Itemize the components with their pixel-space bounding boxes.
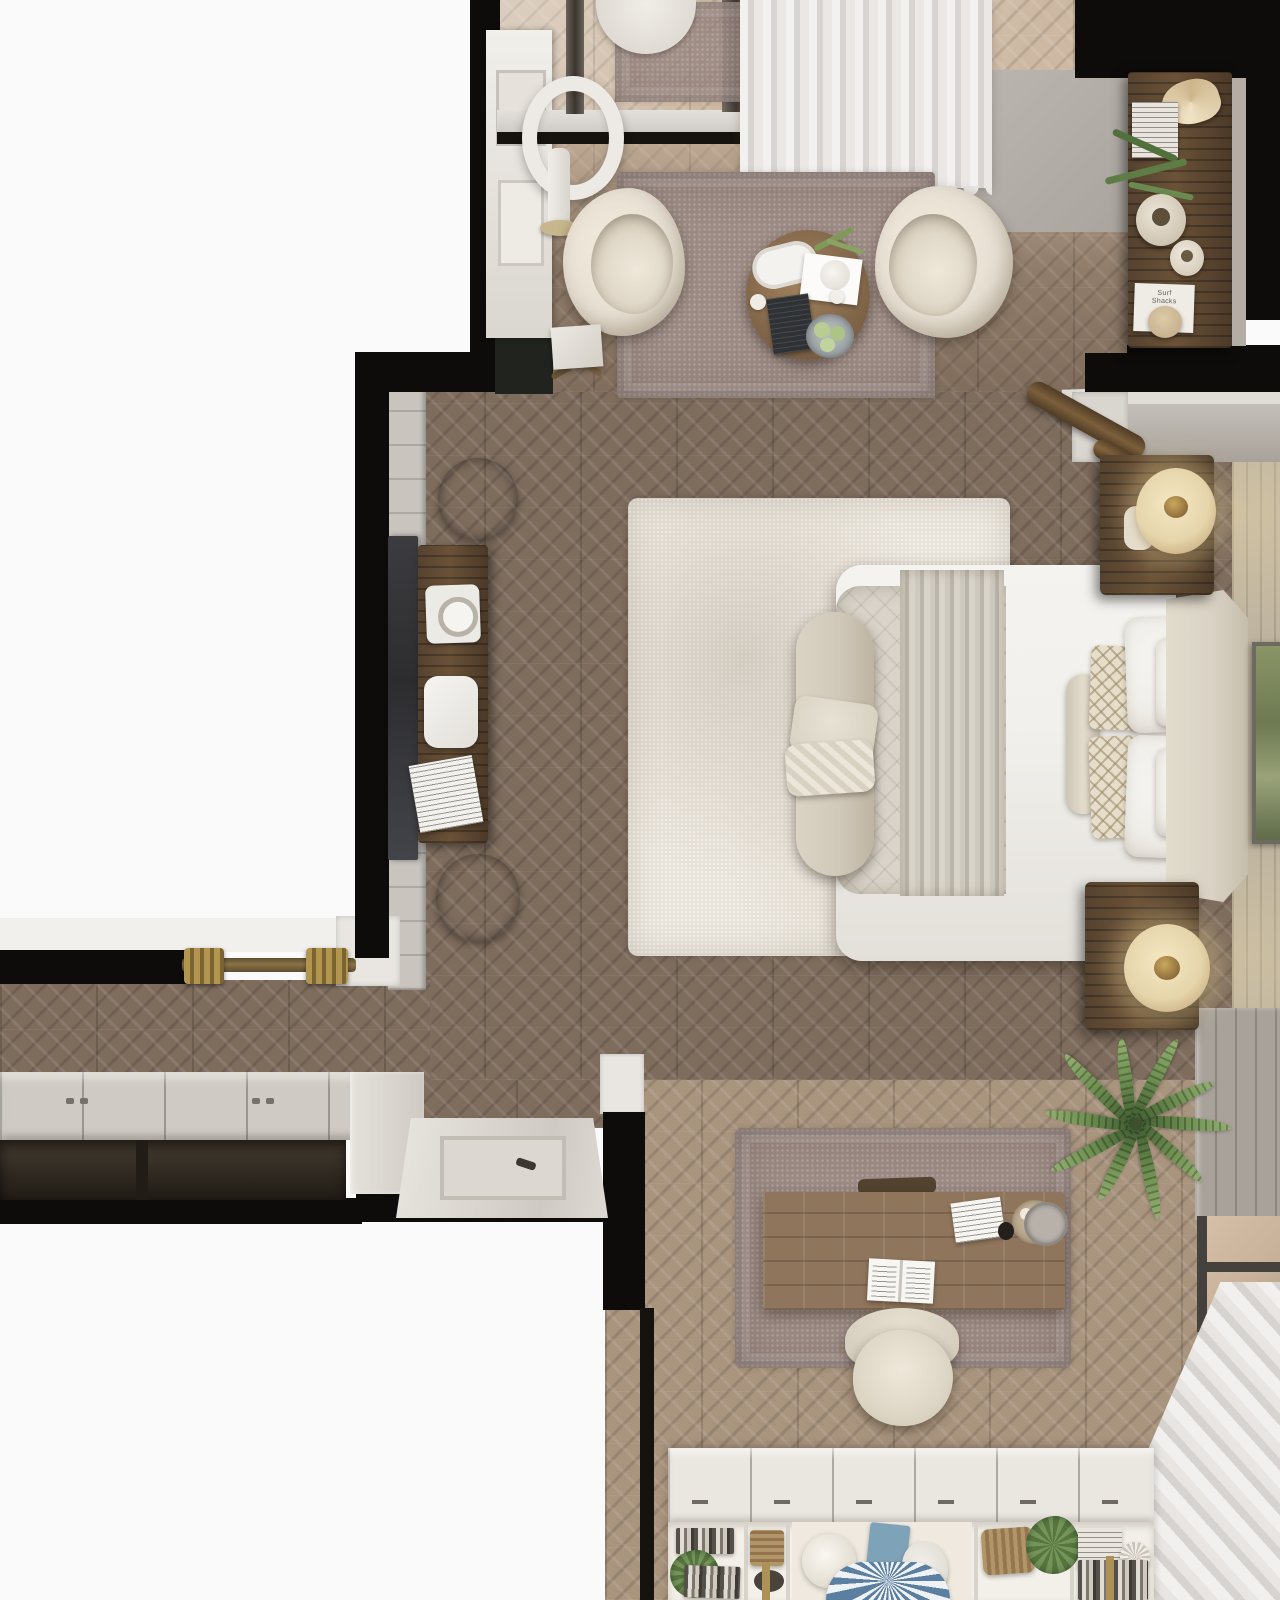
wall-east-top-vertical	[1245, 0, 1280, 320]
wardrobe-open-section	[0, 1140, 346, 1200]
door-brass-pivot	[184, 948, 224, 984]
fruit-bowl	[806, 314, 854, 358]
cabinet-door-handle	[856, 1500, 872, 1504]
lamp-finial	[1164, 496, 1188, 518]
bed-striped-throw	[900, 570, 1004, 896]
wall-hallway-south	[0, 1198, 362, 1224]
book-text-left	[871, 1263, 897, 1298]
wall-ne-horizontal	[1127, 345, 1280, 392]
wall-ne-stub	[1085, 353, 1130, 392]
cabinet-door-handle	[774, 1500, 790, 1504]
armchair-left-seat	[591, 214, 673, 314]
flower-vase	[820, 260, 850, 290]
wall-mid-left-horizontal	[355, 352, 497, 392]
door-brass-pivot	[306, 948, 348, 984]
wall-west-vertical	[355, 392, 389, 958]
bookcase-cabinet-doors	[668, 1448, 1154, 1522]
wicker-basket-south	[436, 854, 520, 942]
wardrobe-handle	[266, 1098, 274, 1104]
shelf-divider	[744, 1522, 748, 1600]
wardrobe-handle	[80, 1098, 88, 1104]
console-tray	[425, 584, 481, 644]
wardrobe-sliding-doors	[0, 1072, 356, 1140]
armchair-right	[875, 186, 1013, 338]
desk-chair-seat	[853, 1330, 953, 1426]
cabinet-door-handle	[938, 1500, 954, 1504]
tall-cabinet: Surf Shacks	[1128, 72, 1232, 348]
door-panel-inset	[440, 1136, 566, 1200]
shelf-plant	[1026, 1516, 1080, 1574]
bed-headboard	[1166, 590, 1248, 902]
vase-mouth	[1152, 208, 1170, 226]
wicker-basket-north	[438, 458, 518, 540]
lamp-finial	[1154, 956, 1180, 980]
tray-clock	[437, 596, 478, 637]
cabinet-door-handle	[692, 1500, 708, 1504]
fan-decor	[826, 1562, 950, 1600]
brass-trim	[1106, 1556, 1114, 1600]
side-table	[544, 326, 608, 404]
cabinet-door-handle	[1102, 1500, 1118, 1504]
lamp-post	[548, 148, 570, 230]
shelf-divider	[974, 1522, 978, 1600]
wardrobe-handle	[252, 1098, 260, 1104]
console-magazine	[409, 755, 484, 833]
shelf-books	[676, 1528, 734, 1554]
apple	[820, 338, 835, 352]
vase-mouth	[1181, 250, 1193, 262]
stationery-paper	[950, 1197, 1005, 1244]
coffee-table	[746, 230, 870, 360]
shelf-basket-box	[750, 1530, 784, 1566]
sheer-curtains-top	[740, 0, 992, 188]
book-title: Surf Shacks	[1134, 283, 1195, 306]
window-frame-bar	[1197, 1216, 1207, 1332]
apartment-render: Surf Shacks	[0, 0, 1280, 1600]
office-pilaster	[600, 1054, 644, 1114]
vase-large	[1136, 194, 1186, 246]
open-book	[867, 1258, 935, 1303]
bookcase-open-shelves	[668, 1522, 1154, 1600]
brass-trim	[762, 1562, 770, 1600]
window-frame-bar	[1197, 1262, 1280, 1272]
hallway-ceiling-band	[0, 918, 352, 952]
ink-cup	[998, 1222, 1014, 1240]
media-device	[424, 676, 478, 748]
candle	[750, 294, 766, 310]
interior-door-leaf	[396, 1118, 608, 1218]
bench-cushion	[784, 739, 875, 797]
vase-small	[1170, 240, 1204, 276]
candle	[830, 290, 844, 304]
bookcase	[668, 1448, 1154, 1600]
writing-desk	[763, 1192, 1065, 1310]
hallway-floor	[0, 980, 430, 1082]
side-table-top	[551, 324, 604, 369]
ring-floor-lamp	[522, 76, 624, 200]
round-vase-on-book	[1148, 306, 1182, 338]
shelf-books	[683, 1565, 740, 1599]
palm-center	[1130, 1118, 1142, 1130]
wardrobe-divider	[136, 1140, 148, 1200]
wall-painting	[1252, 642, 1280, 844]
book-text-right	[905, 1264, 931, 1299]
cabinet-wall-edge	[1232, 78, 1246, 346]
apple	[814, 322, 830, 338]
wardrobe-handle	[66, 1098, 74, 1104]
wall-office-west	[603, 1112, 645, 1310]
book-spine-line	[898, 1260, 903, 1302]
armchair-left	[563, 188, 685, 336]
tv-screen	[388, 536, 418, 860]
wall-hallway-north	[0, 950, 188, 984]
armchair-right-seat	[889, 214, 977, 316]
wall-office-edge	[640, 1308, 654, 1600]
leaning-frame	[498, 180, 544, 266]
cabinet-door-handle	[1020, 1500, 1036, 1504]
ne-doorway-wall	[1128, 404, 1280, 462]
palm-plant	[1038, 1026, 1232, 1220]
shelf-divider	[786, 1522, 790, 1600]
